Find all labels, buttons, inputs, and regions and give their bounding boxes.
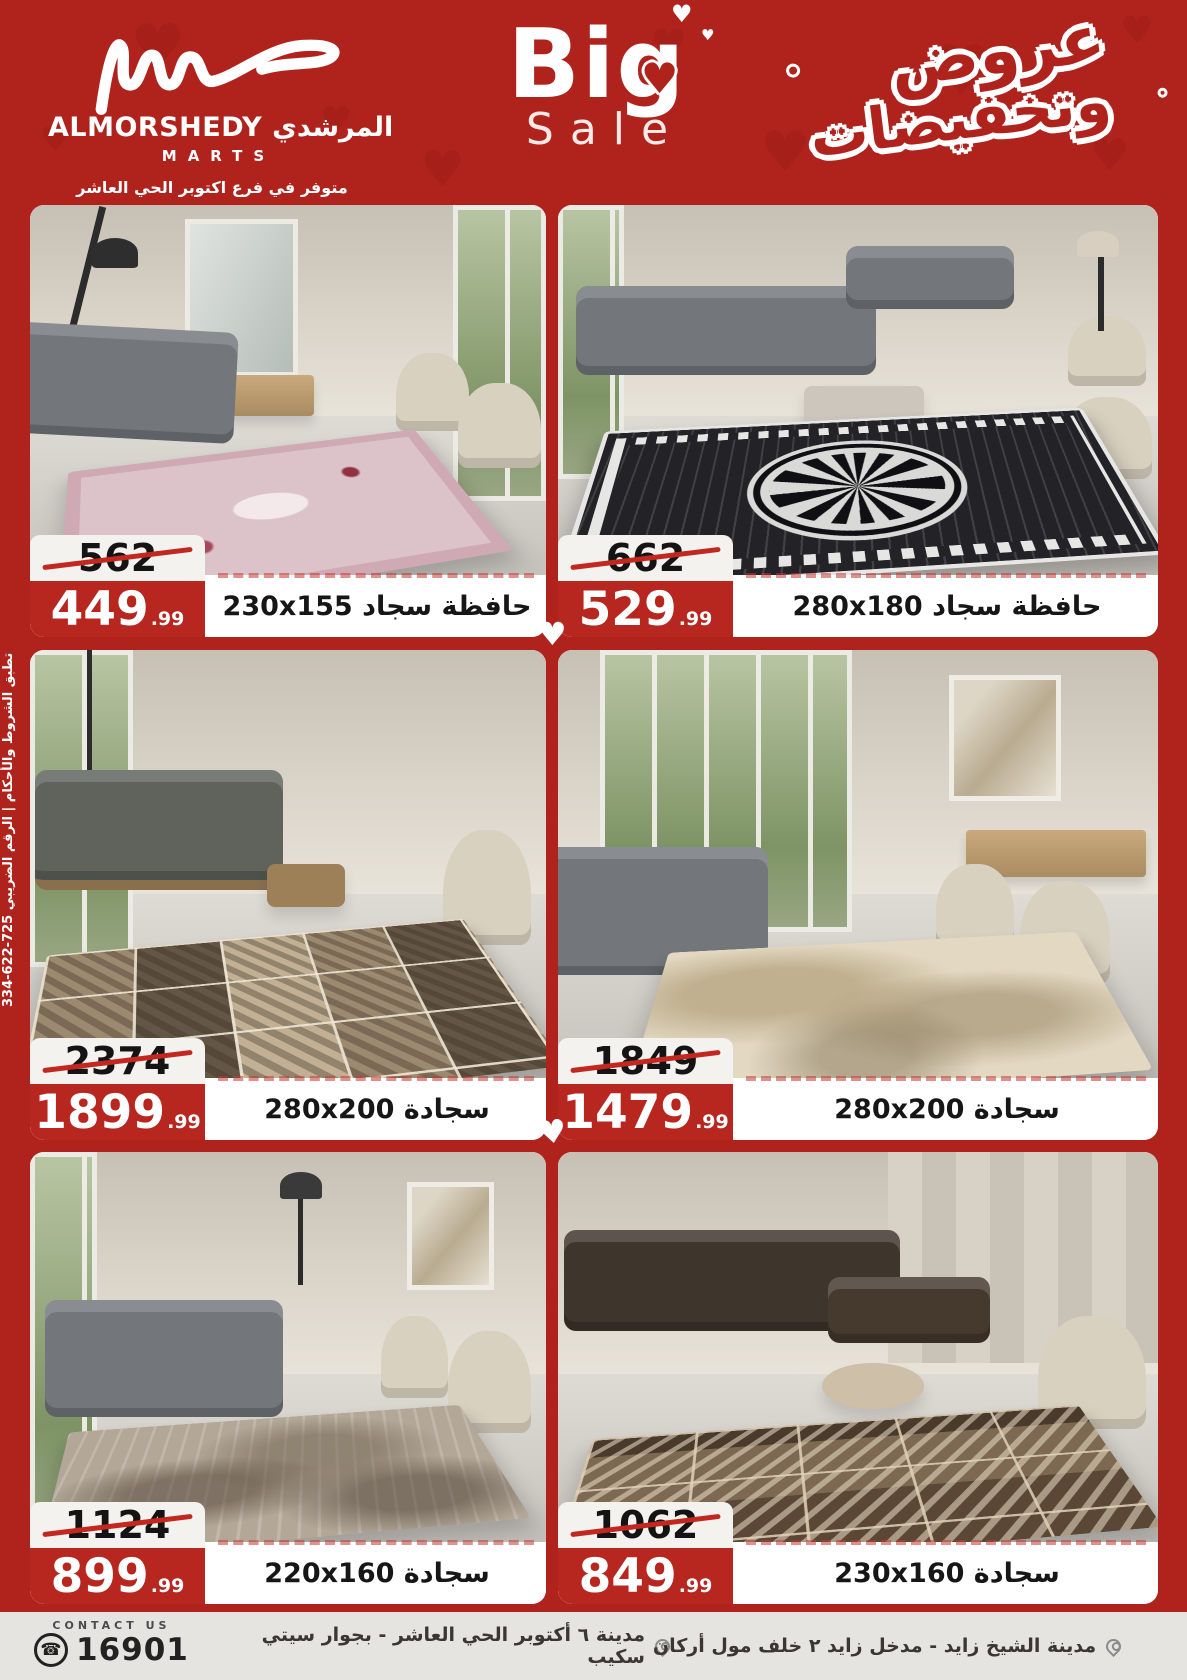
product-photo: [30, 1152, 546, 1542]
address-october: مدينة ٦ أكتوبر الحي العاشر - بجوار سيتي …: [250, 1612, 670, 1680]
heart-icon: ♥: [536, 1114, 569, 1150]
new-price: 899.99: [30, 1548, 205, 1604]
map-pin-icon: [1103, 1635, 1124, 1656]
product-photo: [558, 650, 1158, 1078]
old-price: 1062: [558, 1502, 733, 1548]
coffee-table: [267, 864, 344, 907]
old-price: 562: [30, 535, 205, 581]
old-price: 2374: [30, 1038, 205, 1084]
price-tag: 1062 849.99: [558, 1502, 733, 1604]
heart-icon: ♥: [701, 26, 716, 44]
contact-label: CONTACT US: [34, 1619, 189, 1632]
armchair: [381, 1316, 448, 1398]
product-photo: [30, 205, 546, 575]
logo-swoosh-icon: [63, 22, 363, 118]
floor-lamp: [87, 650, 93, 778]
hotline-number: 16901: [76, 1632, 189, 1668]
flyer-page: ♥ ♥ ♥ ♥ ♥ ♥ ♥ ♥ ♥ ALMORSHEDY المرشدي MAR…: [0, 0, 1187, 1680]
new-price: 849.99: [558, 1548, 733, 1604]
wall-art: [954, 680, 1056, 796]
old-price: 1124: [30, 1502, 205, 1548]
address-zayed-text: مدينة الشيخ زايد - مدخل زايد ٢ خلف مول أ…: [653, 1635, 1096, 1657]
sofa: [35, 770, 283, 890]
new-price: 1899.99: [30, 1084, 205, 1140]
price-tag: 1849 1479.99: [558, 1038, 733, 1140]
old-price: 662: [558, 535, 733, 581]
product-card: سجادة 280x200 2374 1899.99: [30, 650, 546, 1140]
armchair: [396, 353, 468, 431]
heart-icon: ♥: [641, 54, 681, 103]
wall-art: [412, 1187, 489, 1285]
old-price: 1849: [558, 1038, 733, 1084]
contact-block: CONTACT US ☎ 16901: [34, 1619, 189, 1668]
footer: CONTACT US ☎ 16901 مدينة ٦ أكتوبر الحي ا…: [0, 1612, 1187, 1680]
sofa: [846, 246, 1014, 309]
brand-name: ALMORSHEDY المرشدي: [48, 112, 378, 143]
branch-note: متوفر في فرع اكتوبر الحي العاشر: [62, 178, 362, 197]
lamp-shade: [92, 238, 138, 268]
new-price: 529.99: [558, 581, 733, 637]
sofa: [30, 321, 239, 444]
price-tag: 2374 1899.99: [30, 1038, 205, 1140]
heart-icon: ♥: [538, 618, 567, 650]
price-tag: 1124 899.99: [30, 1502, 205, 1604]
armchair: [458, 383, 541, 468]
floor-lamp: [1098, 249, 1104, 330]
price-tag: 662 529.99: [558, 535, 733, 637]
sofa-chaise: [828, 1277, 990, 1343]
product-card: سجادة 280x200 1849 1479.99: [558, 650, 1158, 1140]
product-photo: [30, 650, 546, 1078]
carpet-medallion: [759, 443, 967, 536]
brand-logo: ALMORSHEDY المرشدي MARTS: [48, 22, 378, 165]
product-card: حافظة سجاد 280x180 662 529.99: [558, 205, 1158, 637]
lamp-shade: [1077, 231, 1119, 257]
new-price: 1479.99: [558, 1084, 733, 1140]
brand-subtitle: MARTS: [48, 147, 378, 165]
price-tag: 562 449.99: [30, 535, 205, 637]
heart-icon: ♥: [1090, 130, 1129, 181]
big-sale-title: Big♥♥♥ Sale: [452, 10, 742, 155]
new-price: 449.99: [30, 581, 205, 637]
phone-icon: ☎: [34, 1633, 68, 1667]
tax-terms-note: تطبق الشروط والأحكام | الرقم الضريبي 725…: [1, 600, 27, 1060]
sofa: [45, 1300, 282, 1417]
product-card: حافظة سجاد 230x155 562 449.99: [30, 205, 546, 637]
armchair: [1068, 316, 1146, 386]
product-photo: [558, 1152, 1158, 1542]
address-october-text: مدينة ٦ أكتوبر الحي العاشر - بجوار سيتي …: [250, 1624, 645, 1668]
lamp-shade: [280, 1172, 321, 1199]
product-photo: [558, 205, 1158, 575]
floor-lamp: [298, 1191, 303, 1285]
sofa: [576, 286, 876, 375]
product-card: سجادة 220x160 1124 899.99: [30, 1152, 546, 1604]
product-card: سجادة 230x160 1062 849.99: [558, 1152, 1158, 1604]
big-word: Big♥♥♥: [508, 10, 687, 120]
round-coffee-table: [822, 1363, 924, 1410]
heart-icon: ♥: [671, 0, 695, 28]
address-zayed: مدينة الشيخ زايد - مدخل زايد ٢ خلف مول أ…: [647, 1612, 1127, 1680]
